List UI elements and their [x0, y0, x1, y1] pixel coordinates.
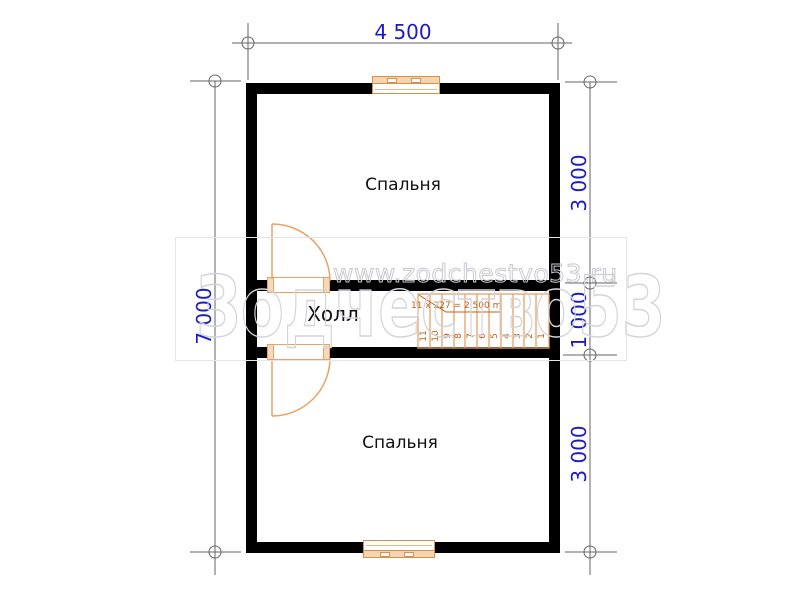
- watermark-frame: [175, 237, 627, 361]
- dimension-right-top-label: 3 000: [569, 123, 589, 243]
- dimension-top-label: 4 500: [343, 22, 463, 42]
- room-label-bedroom-top: Спальня: [343, 175, 463, 195]
- room-label-bedroom-bottom: Спальня: [340, 433, 460, 453]
- floor-plan-canvas: 4 500 7 000 3 000 1 000 3 000 Спальня Хо…: [0, 0, 800, 600]
- dimension-right-bottom-label: 3 000: [569, 394, 589, 514]
- door-bottom-swing-icon: [272, 358, 330, 416]
